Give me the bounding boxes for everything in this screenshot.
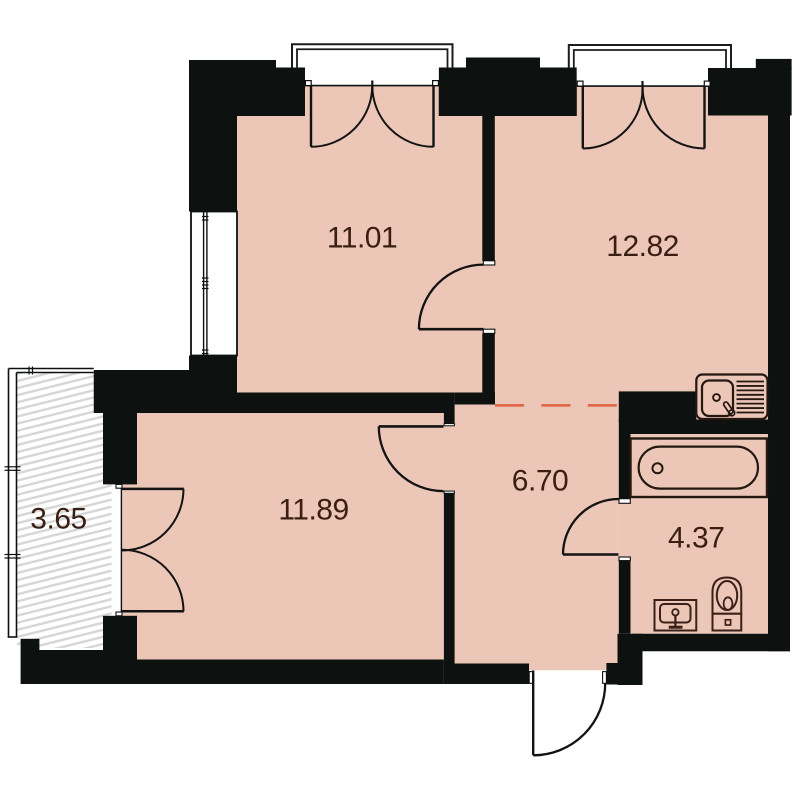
svg-text:11.01: 11.01 (327, 222, 397, 255)
svg-text:12.82: 12.82 (606, 230, 679, 263)
svg-text:3.65: 3.65 (30, 502, 86, 535)
svg-text:11.89: 11.89 (278, 493, 348, 526)
svg-text:6.70: 6.70 (512, 464, 568, 497)
svg-text:4.37: 4.37 (668, 521, 724, 554)
